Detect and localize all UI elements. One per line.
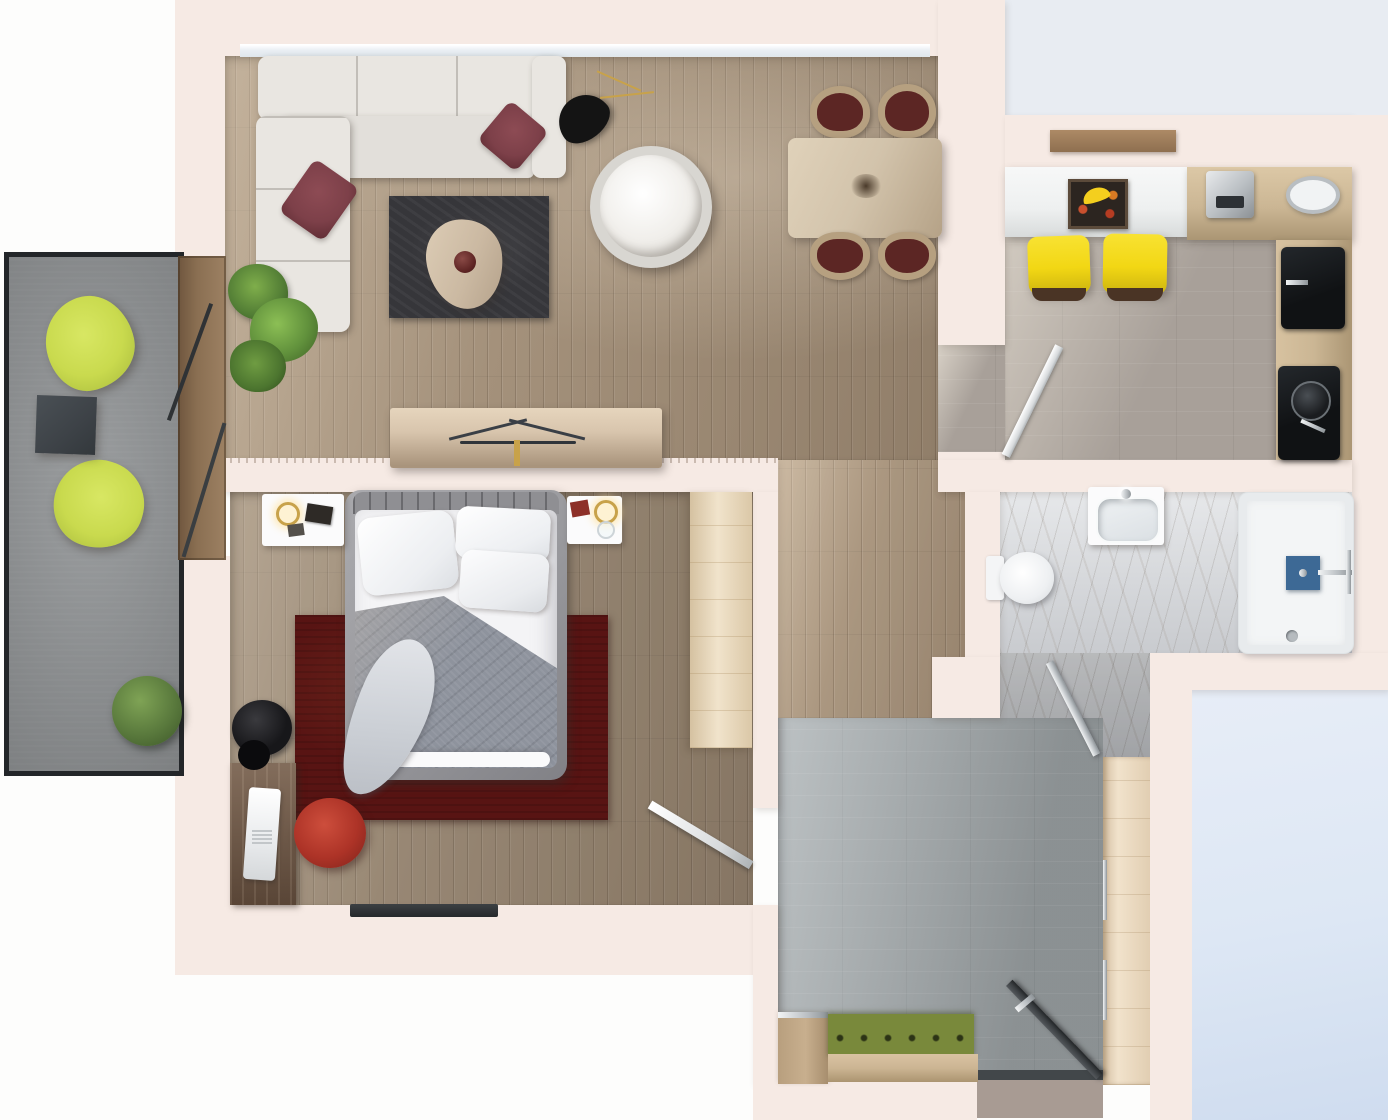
- desk-laptop-keys: [252, 828, 272, 844]
- sliding-door-panel-1: [167, 303, 213, 421]
- cooktop-control: [1286, 280, 1308, 285]
- wall-terrace-left: [1150, 690, 1192, 1120]
- bed-throw-blanket: [322, 628, 454, 807]
- living-rug: [389, 196, 549, 318]
- kitchen-high-cabinet: [1050, 130, 1176, 152]
- kitchen-sink-black: [1278, 366, 1340, 460]
- kitchen-floor: [1005, 168, 1352, 460]
- living-plant-leaf-3: [230, 340, 286, 392]
- living-dining-group: [0, 0, 1388, 1120]
- bed-duvet: [355, 596, 557, 768]
- outside-terrace: [1192, 688, 1388, 1120]
- wall-kitchen-right: [1352, 115, 1388, 653]
- toilet-bowl: [1000, 552, 1054, 604]
- dining-table: [788, 138, 942, 238]
- bed-headboard: [353, 492, 559, 514]
- living-floor: [222, 56, 938, 460]
- coffee-machine-slot: [1216, 196, 1244, 208]
- shower-fixture-dot: [1299, 569, 1307, 577]
- living-plant-leaf-1: [228, 264, 288, 320]
- balcony-floor: [9, 257, 179, 771]
- entry-door-track: [890, 1070, 1103, 1082]
- desk-chair-red: [294, 798, 366, 868]
- wall-kitchen-bath-divider: [938, 460, 1352, 492]
- wall-dining-kitchen-lower: [938, 452, 1005, 492]
- hall-bench-base: [828, 1054, 978, 1082]
- pouf-cushion: [600, 155, 702, 257]
- kitchen-oval-lamp: [1286, 176, 1340, 214]
- sliding-door-panel-2: [182, 422, 227, 557]
- balcony-armchair-1: [37, 288, 143, 398]
- wall-bedroom-right: [753, 492, 778, 808]
- kitchen-group: [0, 0, 1388, 1120]
- sideboard-decor-branch-1: [449, 418, 527, 440]
- window-strip-top: [240, 44, 930, 57]
- hallway-group: [0, 0, 1388, 1120]
- floorplan-canvas: [0, 0, 1388, 1120]
- balcony-group: [0, 0, 1388, 1120]
- bar-stool-1-base: [1032, 288, 1086, 301]
- toilet-tank: [986, 556, 1004, 600]
- fruit-wall-art: [1068, 179, 1128, 229]
- desk: [230, 763, 296, 905]
- sink-faucet: [1300, 419, 1325, 433]
- vanity-cabinet: [1088, 487, 1164, 545]
- hallway-floor: [778, 718, 1103, 1082]
- bed-pillow-left: [356, 509, 460, 597]
- sideboard-decor-stem: [514, 440, 520, 466]
- nightstand-right-lamp: [594, 500, 618, 524]
- bed-frame: [345, 490, 567, 780]
- nightstand-left-book: [305, 503, 333, 525]
- entry-door-leaf: [1006, 980, 1103, 1080]
- balcony-shrub: [112, 676, 182, 746]
- kitchen-door-floor: [938, 345, 1005, 452]
- bedroom-floor: [230, 492, 753, 905]
- bedroom-door-leaf: [648, 801, 754, 869]
- sofa-backrest: [258, 56, 560, 120]
- wardrobe: [690, 492, 752, 748]
- bed-foot-fold: [362, 752, 550, 767]
- corridor-floor: [778, 460, 965, 718]
- sliding-door-frame: [178, 256, 226, 560]
- sideboard: [390, 408, 662, 468]
- bar-stool-2: [1102, 233, 1167, 294]
- pouf: [590, 146, 712, 268]
- bathroom-floor: [1000, 492, 1352, 653]
- shower-drain: [1286, 630, 1298, 642]
- bedroom-tv: [350, 904, 498, 917]
- shower-valve-bar: [1346, 550, 1351, 594]
- sofa-pillow-red-2: [477, 100, 549, 172]
- nightstand-left-tray: [287, 523, 305, 537]
- dining-chair-top-right: [878, 84, 936, 138]
- wall-hall-bottom: [753, 1080, 977, 1120]
- bedroom-floor-lamp-base: [238, 740, 270, 770]
- hall-bench-seat: [828, 1014, 974, 1058]
- sideboard-decor-branch-3: [460, 441, 576, 444]
- exterior-group: [0, 0, 1388, 1120]
- wall-bathroom-bottom-band: [1150, 653, 1388, 690]
- sky-strip-right: [1352, 118, 1388, 492]
- dining-chair-bottom-left: [810, 232, 870, 280]
- dining-chair-top-left: [810, 86, 870, 138]
- bar-stool-1: [1027, 235, 1091, 295]
- nightstand-left-lamp: [276, 502, 300, 526]
- bed-pillow-right-lower: [458, 549, 550, 613]
- wall-bedroom-top: [222, 458, 778, 492]
- wall-bedroom-left: [175, 556, 230, 975]
- shower-fixture-blue: [1286, 556, 1320, 590]
- sofa-pillow-red-1: [279, 158, 360, 241]
- shoe-cabinet-trim: [778, 1012, 828, 1018]
- washbasin: [1096, 497, 1160, 543]
- sofa-armrest: [532, 56, 566, 178]
- nightstand-right-glass: [597, 521, 615, 539]
- desk-laptop: [243, 787, 281, 881]
- sofa-seat: [282, 116, 534, 178]
- dining-chair-bottom-right: [878, 232, 936, 280]
- nightstand-right: [567, 496, 622, 544]
- bed-pillow-right-upper: [455, 506, 552, 563]
- kitchen-worktop: [1187, 167, 1352, 240]
- dining-table-knot: [850, 174, 882, 198]
- bathroom-group: [0, 0, 1388, 1120]
- entry-mat: [977, 1080, 1103, 1118]
- sky-band-top-right: [935, 0, 1388, 118]
- floor-lamp-shade: [548, 84, 618, 152]
- wall-bathroom-left: [965, 492, 1000, 657]
- nightstand-left: [262, 494, 344, 546]
- shower-tray: [1238, 492, 1354, 654]
- floor-lamp-arm-2: [600, 91, 654, 99]
- bedroom-rug: [295, 615, 608, 820]
- balcony-side-table: [35, 395, 97, 455]
- shoe-cabinet: [778, 1014, 828, 1084]
- bedroom-group: [0, 0, 1388, 1120]
- wall-top: [175, 0, 938, 56]
- balcony-armchair-2: [44, 449, 155, 558]
- breakfast-bar: [1005, 167, 1187, 237]
- floor-lamp-arm-1: [597, 70, 642, 91]
- kitchen-worktop-right: [1276, 240, 1352, 460]
- living-plant-leaf-2: [250, 298, 318, 362]
- bathroom-floor-lower: [1000, 653, 1150, 757]
- banana-art: [1081, 184, 1112, 206]
- wall-bathroom-corner-block: [932, 657, 1000, 718]
- closet-handle-strip: [1103, 860, 1107, 920]
- wall-kitchen-top: [1005, 115, 1352, 168]
- bathroom-threshold: [1000, 757, 1103, 782]
- living-light-overlay: [222, 56, 938, 460]
- floors-group: [0, 0, 1388, 1120]
- shower-arm: [1318, 570, 1352, 575]
- walls-group: [0, 0, 1388, 1120]
- bedroom-floor-lamp-shade: [232, 700, 292, 756]
- balcony-frame: [4, 252, 184, 776]
- wall-hall-left: [753, 905, 778, 1083]
- sofa-chaise: [256, 116, 350, 332]
- entry-door-handle: [1015, 994, 1036, 1013]
- bed-linen: [355, 510, 557, 766]
- bathroom-door-leaf: [1046, 660, 1100, 756]
- coffee-table: [421, 214, 509, 314]
- kitchen-door-leaf: [1002, 344, 1064, 458]
- closet-handle-strip-2: [1103, 960, 1107, 1020]
- sideboard-decor-branch-2: [509, 419, 585, 441]
- basin-faucet: [1121, 489, 1131, 499]
- hall-closet-front: [1103, 757, 1153, 1085]
- cooktop: [1281, 247, 1345, 329]
- wall-dining-kitchen-upper: [938, 0, 1005, 345]
- nightstand-right-book: [570, 500, 590, 518]
- bar-stool-2-base: [1107, 288, 1163, 301]
- wall-left-upper: [175, 0, 225, 260]
- wall-bedroom-bottom: [222, 905, 753, 975]
- coffee-machine: [1206, 171, 1254, 218]
- kettle: [1291, 381, 1331, 421]
- coffee-table-vase: [454, 251, 476, 273]
